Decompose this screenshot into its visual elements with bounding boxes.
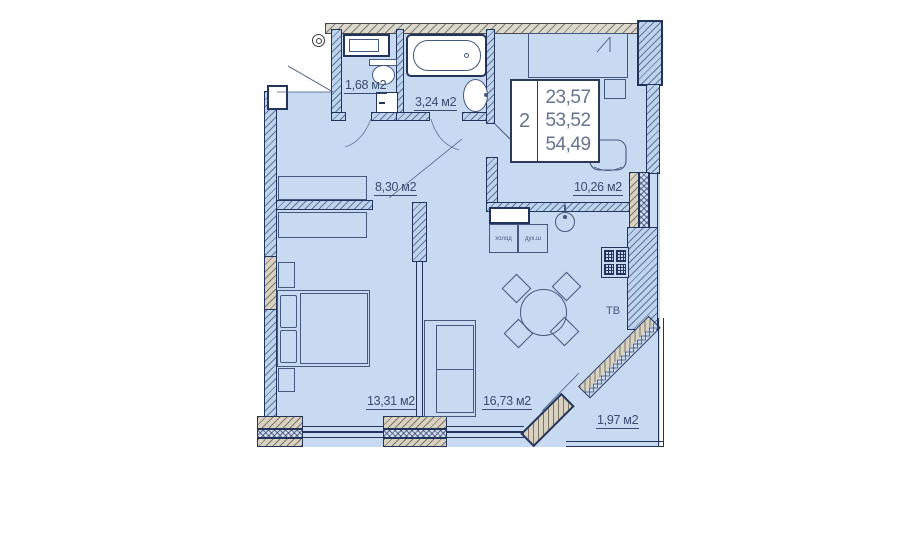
- oven-cell: дух.ш: [518, 224, 548, 253]
- bath-door-swing: [431, 119, 459, 150]
- area-label-balcony: 1,97 м2: [596, 413, 639, 429]
- balcony-door-leaf: [542, 373, 579, 411]
- tv-label: ТВ: [606, 305, 620, 317]
- entry-door-leaf: [288, 66, 333, 92]
- vent-icon: [312, 34, 325, 47]
- kitchen-sink-unit: [489, 207, 530, 224]
- nightstand: [278, 262, 295, 288]
- bathtub: [406, 34, 487, 77]
- bed-double-top: [528, 33, 628, 78]
- plan-lines: [0, 0, 900, 556]
- apartment-info-box: 2 23,57 53,52 54,49: [510, 79, 600, 163]
- bed-pillow: [280, 330, 297, 363]
- sofa: [424, 320, 476, 417]
- area-label-bathroom: 3,24 м2: [414, 95, 457, 111]
- area-values: 23,57 53,52 54,49: [538, 81, 598, 161]
- area-label-wc: 1,68 м2: [344, 78, 387, 94]
- bed-mattress: [300, 293, 368, 364]
- hall-wardrobe: [278, 176, 367, 200]
- kitchen-sink-dot: [563, 215, 567, 219]
- nightstand: [278, 368, 295, 392]
- area-label-bedroom: 10,26 м2: [573, 180, 623, 196]
- washing-machine: [343, 34, 390, 57]
- bed-pillow: [280, 295, 297, 328]
- rooms-count: 2: [512, 81, 538, 161]
- fridge-label: холод: [495, 236, 511, 242]
- total-area-value: 54,49: [545, 133, 590, 156]
- living-area-value: 23,57: [545, 86, 590, 109]
- area-label-living: 16,73 м2: [482, 394, 532, 410]
- floor-plan: 2 23,57 53,52 54,49 холод дух.ш ТВ 1,68 …: [0, 0, 900, 556]
- oven-label: дух.ш: [525, 236, 541, 242]
- stove-icon: [601, 247, 629, 278]
- area-label-hallway: 8,30 м2: [374, 180, 417, 196]
- area-label-bedroom2: 13,31 м2: [366, 394, 416, 410]
- wc-cabinet: [376, 92, 398, 113]
- sink-tap-dot: [484, 93, 488, 97]
- wc-door-swing: [345, 119, 371, 147]
- nightstand: [604, 79, 626, 99]
- area-value: 53,52: [545, 109, 590, 132]
- fridge-cell: холод: [489, 224, 518, 253]
- bedroom2-closet: [278, 212, 367, 238]
